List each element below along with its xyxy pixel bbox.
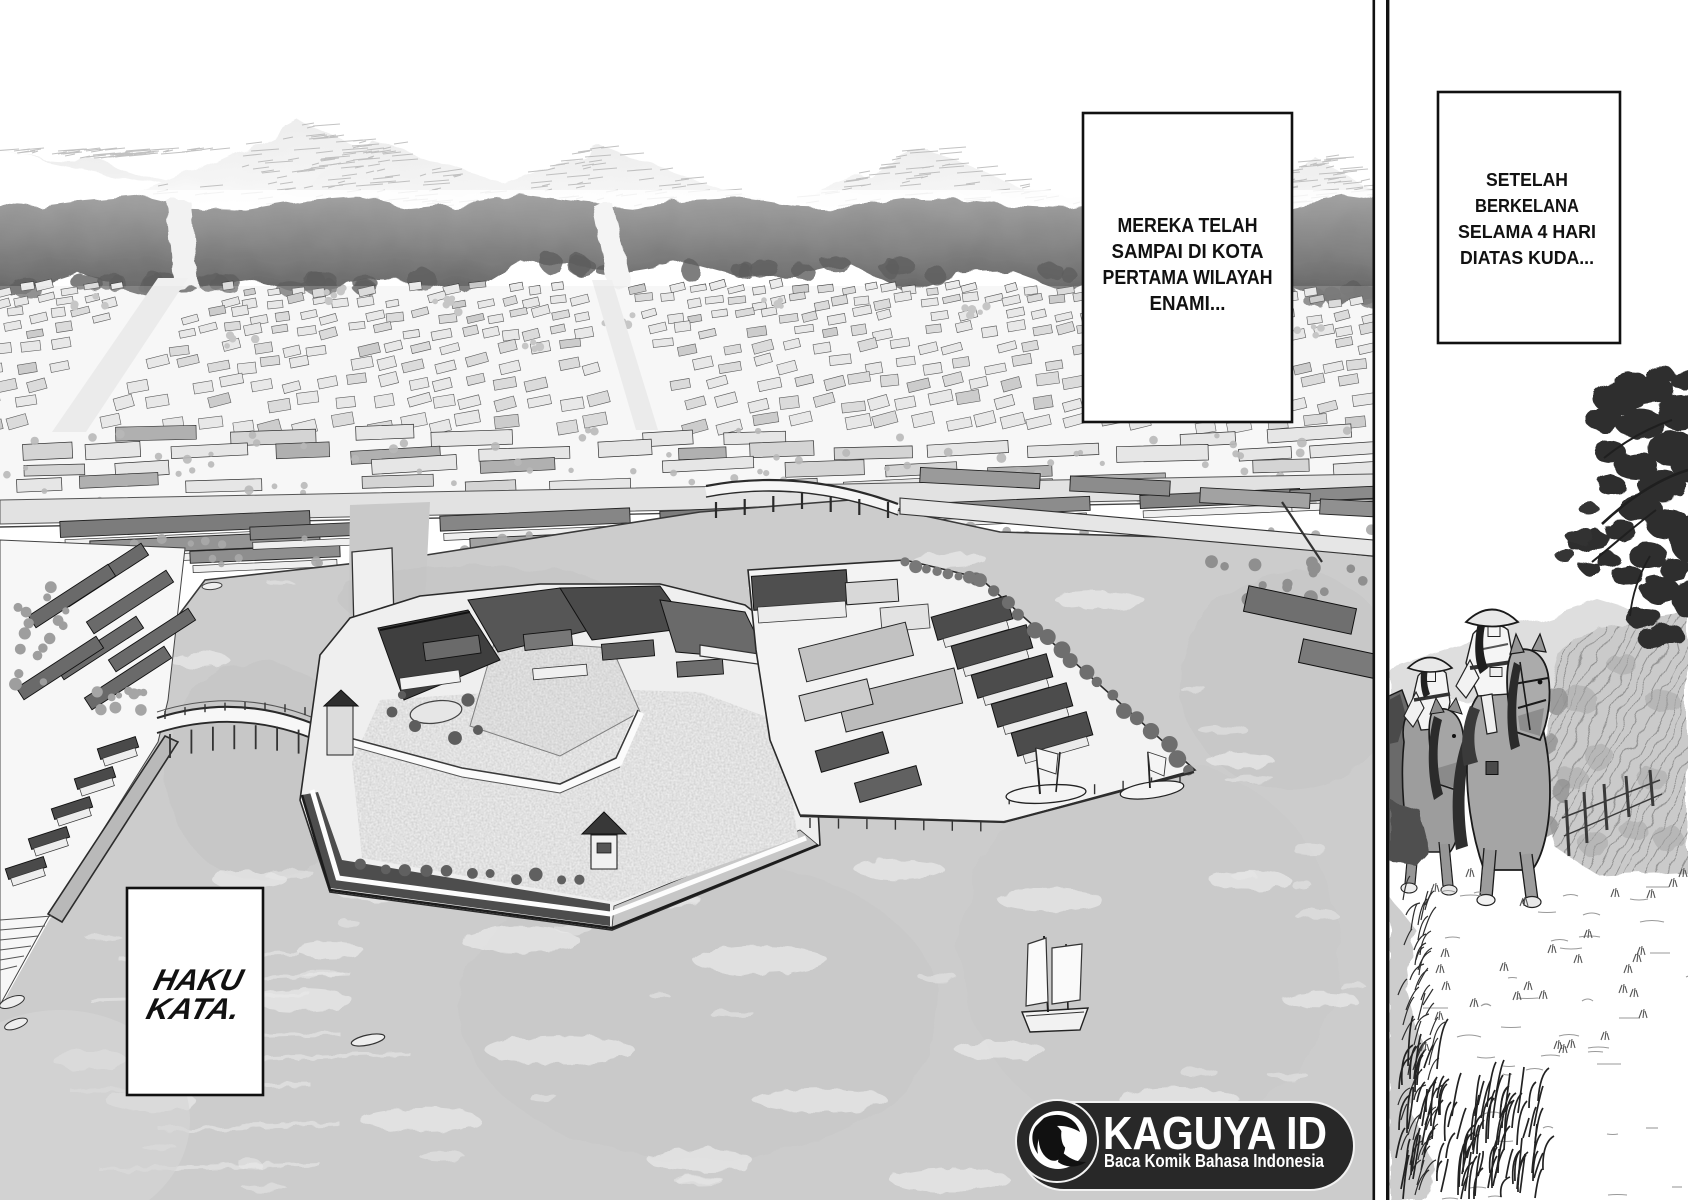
svg-text:Baca Komik Bahasa Indonesia: Baca Komik Bahasa Indonesia bbox=[1104, 1151, 1325, 1171]
svg-text:SELAMA 4 HARI: SELAMA 4 HARI bbox=[1458, 222, 1596, 242]
svg-text:SAMPAI DI KOTA: SAMPAI DI KOTA bbox=[1112, 240, 1264, 263]
svg-text:BERKELANA: BERKELANA bbox=[1475, 196, 1579, 216]
svg-text:SETELAH: SETELAH bbox=[1486, 170, 1568, 190]
svg-text:ENAMI...: ENAMI... bbox=[1150, 292, 1226, 315]
svg-text:DIATAS KUDA...: DIATAS KUDA... bbox=[1460, 248, 1594, 268]
svg-text:PERTAMA WILAYAH: PERTAMA WILAYAH bbox=[1103, 266, 1273, 289]
svg-text:KATA.: KATA. bbox=[143, 992, 243, 1025]
svg-text:MEREKA TELAH: MEREKA TELAH bbox=[1118, 214, 1258, 237]
